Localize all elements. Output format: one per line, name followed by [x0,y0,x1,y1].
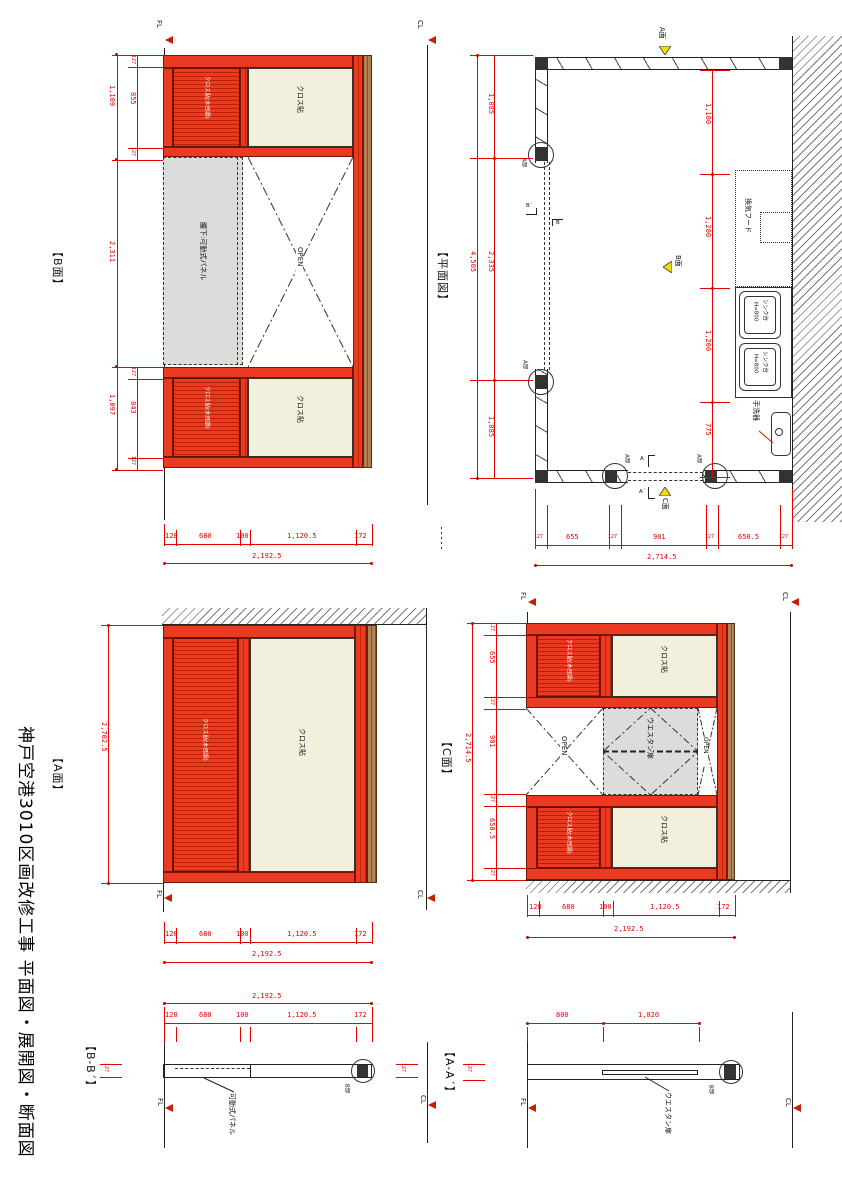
dim-value: 1,120.5 [287,533,317,540]
face-a-label: A面 [658,27,665,44]
fl-marker-icon [165,1104,173,1112]
detail-b-label: B部 [343,1084,349,1098]
face-b-label: B面 [674,255,681,272]
frame-post [163,68,173,147]
wall-edge [363,55,372,468]
dim-ext [792,489,793,549]
fl-marker-icon [165,36,173,44]
section-label-b: B [556,221,560,227]
dim-dot [493,379,496,382]
dim-ext [372,524,373,546]
dim-ext [700,174,730,175]
ceiling-hatch [162,608,427,625]
end-post [353,55,363,468]
dim-ext [372,1007,373,1042]
frame-bar [163,872,355,883]
dim-value: 172 [354,533,367,540]
movable-wall-dashed [544,162,545,370]
dim-value: 127 [534,535,543,540]
dim-line [164,544,372,545]
frame-divider [240,68,248,147]
dim-value: 127 [489,622,494,631]
frame-divider [238,638,250,872]
cl-label: CL [784,1098,791,1114]
detail-circle-a [528,142,554,168]
door-opening-dashed [628,480,703,481]
sink-unit-inner [744,348,776,386]
dim-value: 901 [488,735,495,748]
dim-dot [471,622,474,625]
hand-basin-drain [775,428,783,436]
hand-basin-label: 手洗器 [752,400,759,430]
dim-line [164,962,372,963]
frame-divider [600,635,612,697]
dim-ext [100,1077,122,1078]
face-a-marker-icon [659,46,671,55]
dim-ext [527,1027,528,1042]
dim-line [472,623,473,880]
grooved-cloth-label: クロス貼(木目調) [203,386,209,450]
wall-end-block [779,57,792,70]
frame-bar [163,367,353,378]
dim-ext [128,379,163,380]
dim-ext [372,922,373,944]
frame-post [163,378,173,457]
section-label-b2: B´ [526,204,533,210]
dim-dot [370,562,373,565]
cl-marker-icon [791,598,799,606]
cl-line [427,1042,428,1143]
movable-wall-dashed [549,162,550,370]
detail-circle-a [528,369,554,395]
dim-ext [700,288,730,289]
dim-value: 1,120.5 [650,904,680,911]
dim-ext [128,67,163,68]
frame-bar [163,625,355,638]
dim-value: 127 [489,867,494,876]
dim-dot [163,961,166,964]
dim-value: 1,097 [108,394,115,415]
cloth-label: クロス貼 [660,645,667,687]
dim-value: 127 [130,456,135,465]
dim-value: 127 [130,55,135,64]
dim-dot [711,287,714,290]
dim-ext [467,880,526,881]
dim-ext [735,895,736,917]
fl-label: FL [519,592,526,608]
dim-ext [463,1080,485,1081]
dim-value: 2,335 [487,251,494,272]
western-door-label: ウエスタン扉 [646,717,653,787]
detail-b-label: B部 [707,1085,713,1099]
dim-ext [780,505,781,549]
dim-value: 127 [489,793,494,802]
dim-ext [706,505,707,549]
dim-value: 100 [599,904,612,911]
floor-hatch [526,881,790,893]
dim-value: 172 [717,904,730,911]
dim-ext [718,505,719,549]
western-door-leader [644,1076,670,1092]
cl-label: CL [781,592,788,608]
wall-end-block [535,470,548,483]
detail-a-label: A部 [623,454,629,468]
dim-line [712,70,713,478]
dim-dot [115,365,118,368]
detail-circle-a [702,463,728,489]
dim-ext [603,1027,604,1042]
dim-value: 2,702.5 [100,722,107,752]
dim-line [164,1023,372,1024]
dim-value: 901 [653,534,666,541]
dim-value: 120 [165,931,178,938]
wall-edge [367,625,377,883]
dim-line [164,563,372,564]
open-label: OPEN [560,736,567,764]
cl-marker-icon [428,1101,436,1109]
dim-dot [115,158,118,161]
wall-line [792,36,793,522]
sink-height-label: H=800 [752,354,758,382]
cl-marker-icon [428,36,436,44]
dim-dot [602,1022,605,1025]
dim-dot [476,477,479,480]
cl-marker-icon [427,894,435,902]
dim-value: 680 [562,904,575,911]
section-mark [648,455,649,467]
frame-bar [526,623,717,635]
dim-ext [250,1027,251,1042]
fl-marker-icon [528,1104,536,1112]
movable-panel-leader [203,1077,235,1093]
wall-edge [727,623,735,880]
vent-hood-label: 換気フード [744,198,751,250]
dim-line [164,1003,372,1004]
grooved-cloth-label: クロス貼(木目調) [565,811,571,865]
dim-dot [370,961,373,964]
dim-value: 100 [236,931,249,938]
dim-ext [356,1027,357,1042]
frame-divider [240,378,248,457]
panel-joint [250,1064,251,1078]
dim-value: 680 [199,533,212,540]
section-label-a2: A´ [639,490,646,496]
grooved-cloth-label: クロス貼(木目調) [201,718,207,788]
dim-dot [115,53,118,56]
dim-ext [547,505,548,549]
dim-dot [733,936,736,939]
grooved-cloth-label: クロス貼(木目調) [565,639,571,693]
dim-value: 2,192.5 [252,553,282,560]
cloth-label: クロス貼 [296,85,303,130]
dim-dot [534,564,537,567]
dim-ext [470,55,533,56]
view-title-b: 【B面】 [52,246,63,300]
dim-ext [112,160,163,161]
dim-value: 655 [488,651,495,664]
cl-label: CL [419,1095,426,1111]
dim-value: 120 [529,904,542,911]
sink-label: シンク台 [761,299,767,331]
dim-value: 120 [165,533,178,540]
dim-ext [527,895,528,917]
dim-value: 120 [165,1012,178,1019]
dim-value: 127 [608,535,617,540]
section-mark [552,219,553,226]
dim-ext [484,806,526,807]
dim-dot [163,562,166,565]
cl-line [792,1012,793,1148]
dim-ext [470,158,533,159]
detail-a-label: A部 [521,360,527,374]
dim-dot [370,1002,373,1005]
dim-ext [240,1027,241,1042]
dim-value: 2,192.5 [252,993,282,1000]
fl-line [527,612,528,623]
dim-value: 1,200 [704,216,711,237]
cl-label: CL [416,20,423,36]
dim-line [477,55,478,478]
view-title-a: 【A面】 [52,752,63,806]
dim-ext [699,1027,700,1042]
dim-line [535,545,792,546]
dim-ext [484,635,526,636]
dim-line [535,565,792,566]
section-panel-bar [163,1064,372,1078]
dim-value: 127 [130,367,135,376]
sink-unit-inner [744,296,776,334]
drawing-sheet: 神戸空港3010区画改修工事 平面図・展開図・断面図 【B面】 FL CL クロ… [0,0,842,1191]
dim-dot [115,468,118,471]
dim-value: 1,100 [704,103,711,124]
vent-hood-inner [760,212,792,243]
fl-marker-icon [164,894,172,902]
dim-ext [101,883,163,884]
dim-ext [396,1077,418,1078]
cloth-label: クロス貼 [298,728,305,773]
dim-dot [476,54,479,57]
fl-label: FL [155,890,162,906]
fl-line [164,1042,165,1148]
dim-value: 650.5 [488,818,495,839]
dim-dot [526,936,529,939]
cl-line [427,45,428,505]
dim-value: 127 [103,1063,108,1072]
dim-dot [471,879,474,882]
detail-circle-b [719,1060,743,1084]
dim-value: 2,714.5 [464,733,471,763]
dim-value: 172 [354,1012,367,1019]
view-title-aa: 【A-A´】 [444,1046,455,1118]
cl-marker-icon [793,1104,801,1112]
frame-bar [163,147,353,157]
frame-post [163,638,173,872]
movable-panel-dashed [175,1068,250,1069]
frame-bar [163,55,353,68]
dim-value: 100 [236,533,249,540]
dim-value: 2,311 [108,241,115,262]
hand-basin-leader [758,430,774,444]
dim-value: 775 [704,423,711,436]
dim-line [496,623,497,880]
dim-dot [107,624,110,627]
detail-a-label: A部 [695,454,701,468]
dim-ext [112,470,163,471]
dim-dot [163,1002,166,1005]
dim-dot [790,564,793,567]
dim-value: 1,120.5 [287,931,317,938]
face-b-marker-icon [663,261,672,273]
fl-label: FL [519,1098,526,1114]
wall-end-block [535,57,548,70]
dim-value: 843 [129,401,136,414]
dim-line [137,55,138,160]
fl-label: FL [155,20,162,36]
section-mark [648,498,655,499]
dim-ext [484,709,526,710]
dim-ext [470,380,533,381]
section-mark [648,455,655,456]
dim-value: 127 [466,1063,471,1072]
dim-value: 1,085 [487,93,494,114]
dim-value: 650.5 [738,534,759,541]
dim-value: 127 [489,696,494,705]
western-door-label: ウエスタン扉 [664,1092,671,1152]
cl-line [426,608,427,910]
wall-end-block [779,470,792,483]
frame-bar [526,868,717,880]
view-title-plan: 【平面図】 [437,246,448,304]
dim-value: 1,020 [638,1012,659,1019]
cloth-label: クロス貼 [660,815,667,857]
dim-dot [711,173,714,176]
dim-ext [609,505,610,549]
dim-line [527,937,735,938]
dim-value: 4,505 [469,251,476,272]
waist-panel-label: 腰下:可動式パネル [199,222,206,304]
dim-value: 127 [400,1063,405,1072]
dim-value: 655 [566,534,579,541]
open-label: OPEN [702,737,708,765]
movable-panel-edge [237,157,238,365]
grooved-cloth-label: クロス貼(木目調) [203,76,209,140]
frame-divider [600,807,612,868]
dim-value: 1,085 [487,416,494,437]
dim-value: 1,120.5 [287,1012,317,1019]
frame-bar [163,457,353,468]
dim-ext [700,402,730,403]
dim-line [527,1023,700,1024]
face-c-marker-icon [659,487,671,496]
dim-ext [700,70,730,71]
cl-line [790,612,791,893]
dim-line [117,55,118,470]
sink-height-label: H=800 [752,302,758,330]
dotted-separator [441,527,442,551]
dim-ext [621,505,622,549]
dim-line [164,942,372,943]
dim-value: 2,714.5 [647,554,677,561]
wall-open-mask [534,163,550,369]
frame-bar [526,795,717,807]
dim-dot [493,157,496,160]
dim-dot [698,1022,701,1025]
face-c-label: C面 [661,498,668,515]
dim-ext [101,625,163,626]
dim-value: 800 [556,1012,569,1019]
dim-ext [470,478,533,479]
frame-bar [526,697,717,708]
dim-value: 2,192.5 [252,951,282,958]
dim-line [527,915,735,916]
cloth-label: クロス貼 [296,395,303,440]
dim-ext [700,477,730,478]
dim-value: 127 [130,147,135,156]
detail-a-label: A部 [520,158,526,172]
dim-value: 127 [779,535,788,540]
dim-dot [526,1022,529,1025]
dim-value: 127 [705,535,714,540]
dim-line [137,367,138,470]
dim-ext [535,489,536,549]
end-post [355,625,367,883]
detail-circle-b [351,1059,375,1083]
dim-dot [107,882,110,885]
view-title-bb: 【B-B´】 [85,1040,96,1112]
dim-value: 680 [199,1012,212,1019]
cl-label: CL [416,890,423,906]
fl-marker-icon [528,598,536,606]
end-post [717,623,727,880]
movable-panel-label: 可動式パネル [228,1093,235,1143]
door-opening-dashed [628,472,703,473]
section-label-a: A [640,457,644,463]
fl-line [527,1042,528,1148]
fl-label: FL [156,1098,163,1114]
western-door-section [602,1070,698,1075]
open-label: OPEN [296,247,303,275]
dim-value: 172 [354,931,367,938]
dim-value: 855 [129,92,136,105]
dim-line [108,625,109,883]
dim-value: 2,192.5 [614,926,644,933]
sheet-title: 神戸空港3010区画改修工事 平面図・展開図・断面図 [16,726,33,1188]
dim-dot [711,401,714,404]
dim-value: 1,109 [108,85,115,106]
view-title-c: 【C面】 [441,736,452,790]
sink-label: シンク台 [761,351,767,383]
dim-value: 1,200 [704,330,711,351]
dim-value: 680 [199,931,212,938]
dim-ext [164,1007,165,1042]
dim-ext [176,1027,177,1042]
section-mark [536,208,537,215]
dim-value: 100 [236,1012,249,1019]
dim-ext [467,623,526,624]
plan-wall-a [535,57,792,70]
existing-wall-hatch [792,36,842,522]
